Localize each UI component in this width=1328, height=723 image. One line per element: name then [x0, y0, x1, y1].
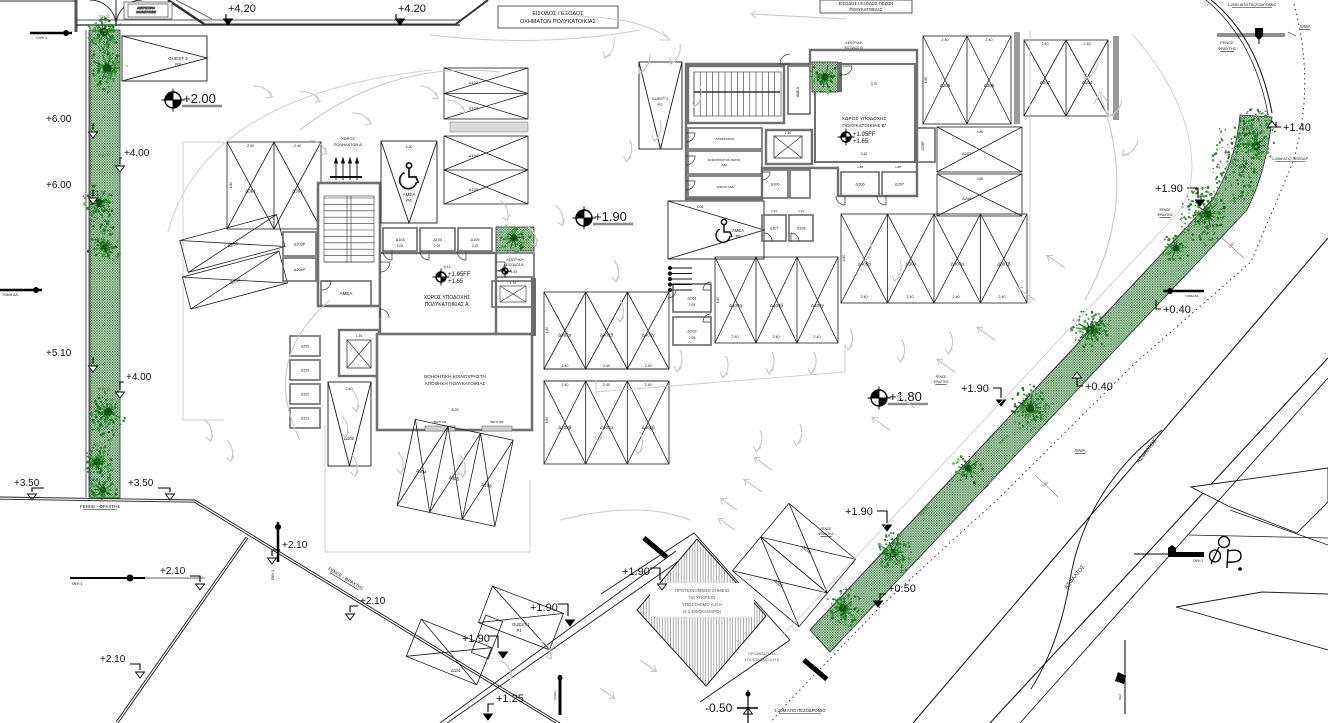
svg-text:3.80: 3.80: [721, 163, 727, 167]
svg-text:ΤΟΙΧΟΣ: ΤΟΙΧΟΣ: [98, 15, 110, 19]
svg-text:+1.65: +1.65: [448, 279, 464, 285]
svg-text:3.30: 3.30: [406, 145, 413, 149]
svg-text:ΚΗΠΟΣ: ΚΗΠΟΣ: [1246, 127, 1258, 131]
svg-text:1.88: 1.88: [857, 165, 863, 169]
svg-text:+1.90: +1.90: [961, 383, 989, 395]
svg-text:ΥΠΟΣΤΑΘΜΟ Α.Η.Κ: ΥΠΟΣΤΑΘΜΟ Α.Η.Κ: [745, 658, 780, 662]
svg-text:Δ105: Δ105: [469, 187, 479, 192]
svg-text:+2.00: +2.00: [183, 91, 216, 106]
svg-text:Δ101: Δ101: [451, 668, 461, 673]
svg-text:Ρ1: Ρ1: [516, 628, 522, 633]
svg-text:Δ206: Δ206: [940, 83, 951, 88]
svg-text:ΧΩΡΟΣ: ΧΩΡΟΣ: [341, 136, 355, 141]
svg-text:ΚΕΝΤΡΙΚΗ: ΚΕΝΤΡΙΚΗ: [846, 41, 864, 45]
svg-text:ΠΡΟΤΕΙΝΟΜΕΝΟ ΣΗΜΕΙΟ: ΠΡΟΤΕΙΝΟΜΕΝΟ ΣΗΜΕΙΟ: [675, 588, 730, 593]
svg-text:ΑΠΟΘΗΚΗ ΠΟΛΥΚΑΤΟΙΚΙΑΣ: ΑΠΟΘΗΚΗ ΠΟΛΥΚΑΤΟΙΚΙΑΣ: [425, 381, 486, 386]
svg-text:FENCE: FENCE: [936, 375, 947, 379]
svg-text:3.45: 3.45: [861, 152, 868, 156]
svg-text:ΤΟΜΗ ΑΑ: ΤΟΜΗ ΑΑ: [1185, 294, 1198, 298]
svg-text:ΑΝΑΨΥΚΤΗΡΙΟ: ΑΝΑΨΥΚΤΗΡΙΟ: [137, 7, 155, 10]
svg-text:+4.00: +4.00: [126, 372, 152, 383]
svg-text:1.34: 1.34: [798, 209, 804, 213]
svg-text:2.40: 2.40: [346, 387, 353, 391]
svg-text:ΦΡΑΧΤΗΣ: ΦΡΑΧΤΗΣ: [934, 380, 949, 384]
svg-text:2.40: 2.40: [603, 383, 610, 387]
svg-text:2.40: 2.40: [561, 364, 568, 368]
svg-text:ΑΜΕΑ: ΑΜΕΑ: [340, 291, 353, 296]
svg-text:2.40: 2.40: [773, 335, 780, 339]
svg-text:+1.93: +1.93: [509, 270, 517, 274]
svg-text:Δ302: Δ302: [292, 188, 303, 193]
svg-text:ΟΨΗ 1: ΟΨΗ 1: [36, 36, 47, 40]
svg-text:ΧΩΡΟΣ ΥΠΟΔΟΧΗΣ: ΧΩΡΟΣ ΥΠΟΔΟΧΗΣ: [842, 116, 887, 122]
svg-text:FENCE - ΦΡΑΧΤΗΣ: FENCE - ΦΡΑΧΤΗΣ: [80, 504, 121, 509]
svg-text:Δ404β: Δ404β: [770, 303, 784, 308]
svg-text:2.40: 2.40: [1084, 42, 1091, 46]
svg-text:Δ206: Δ206: [855, 182, 865, 187]
svg-text:Δ104: Δ104: [469, 153, 479, 158]
svg-text:4.80: 4.80: [977, 177, 984, 181]
svg-text:ΟΧΗΜΑΤΩΝ ΠΟΛΥΚΑΤΟΙΚΙΑΣ: ΟΧΗΜΑΤΩΝ ΠΟΛΥΚΑΤΟΙΚΙΑΣ: [520, 19, 597, 25]
svg-text:ΓΙΑ ΥΠΟΓΕΙΟ: ΓΙΑ ΥΠΟΓΕΙΟ: [689, 595, 717, 600]
svg-text:2.40: 2.40: [294, 144, 301, 148]
svg-text:+1.90: +1.90: [845, 506, 873, 518]
svg-text:Δ106: Δ106: [771, 183, 780, 187]
svg-text:1.20Μ ΑΠΟ ΠΕΖΟΔΡ: 1.20Μ ΑΠΟ ΠΕΖΟΔΡ: [1272, 157, 1309, 161]
svg-text:ΑΜΕΑ: ΑΜΕΑ: [732, 228, 744, 233]
svg-text:ΚΗΠΟΣ: ΚΗΠΟΣ: [98, 387, 111, 391]
svg-text:ΧΩΡΟΣ ΚΔΔ: ΧΩΡΟΣ ΚΔΔ: [716, 185, 733, 189]
svg-text:4.80: 4.80: [229, 182, 233, 189]
svg-text:2.09: 2.09: [434, 244, 440, 248]
svg-text:ΧΩΡΟΣ ΥΠΟΔΟΧΗΣ: ΧΩΡΟΣ ΥΠΟΔΟΧΗΣ: [424, 295, 471, 301]
svg-text:+1.90: +1.90: [622, 566, 650, 578]
svg-text:4.80: 4.80: [977, 130, 984, 134]
svg-text:2.40: 2.40: [814, 335, 821, 339]
svg-text:Δ404γ: Δ404γ: [811, 303, 825, 308]
svg-text:4.80: 4.80: [545, 417, 549, 424]
svg-text:+1.90: +1.90: [530, 602, 558, 614]
svg-text:GUEST 2: GUEST 2: [651, 96, 669, 101]
svg-text:GUEST 1: GUEST 1: [512, 622, 531, 627]
svg-text:ΠΟΔΗΛΑΤΩΝ Α': ΠΟΔΗΛΑΤΩΝ Α': [333, 142, 362, 147]
svg-text:+6.00: +6.00: [46, 114, 72, 125]
svg-text:ΟΨΗ 2: ΟΨΗ 2: [271, 570, 275, 580]
svg-text:ΔΟΞΑΜΑΤΟΣΗΚΗ: ΔΟΞΑΜΑΤΟΣΗΚΗ: [136, 11, 156, 14]
svg-text:ΒΟΗΘΗΤΙΚΗ ΚΟΙΝΟΧΡΗΣΤΗ: ΒΟΗΘΗΤΙΚΗ ΚΟΙΝΟΧΡΗΣΤΗ: [424, 374, 486, 379]
svg-text:Δ107: Δ107: [1040, 80, 1051, 85]
svg-text:Δ405α: Δ405α: [858, 262, 872, 267]
svg-text:Δ205: Δ205: [301, 345, 309, 349]
svg-text:ΦΡΑΧΤΗΣ: ΦΡΑΧΤΗΣ: [819, 532, 834, 536]
svg-text:2.08: 2.08: [689, 303, 695, 307]
svg-text:Δ306: Δ306: [984, 83, 995, 88]
svg-text:Δ404α: Δ404α: [729, 303, 743, 308]
svg-text:+4.00: +4.00: [124, 148, 150, 159]
svg-text:ΠΡΟΣΒΑΣΗ ΓΙΑ: ΠΡΟΣΒΑΣΗ ΓΙΑ: [748, 652, 776, 656]
svg-text:2.40: 2.40: [645, 383, 652, 387]
svg-text:ΚΟΙΝΟΧΡΗΣΤΟΣ ΧΩΡΟΣ: ΚΟΙΝΟΧΡΗΣΤΟΣ ΧΩΡΟΣ: [708, 158, 741, 162]
svg-text:4.80: 4.80: [842, 255, 846, 262]
svg-text:ΕΙΣΟΔΟΣ / ΕΞΟΔΟΣ ΠΕΖΩΝ: ΕΙΣΟΔΟΣ / ΕΞΟΔΟΣ ΠΕΖΩΝ: [839, 1, 894, 6]
svg-text:5.08: 5.08: [697, 205, 704, 209]
svg-text:GUEST 3: GUEST 3: [168, 56, 188, 61]
svg-text:Δ207: Δ207: [895, 182, 905, 187]
svg-text:FENCE: FENCE: [821, 527, 832, 531]
svg-text:2.40: 2.40: [942, 38, 949, 42]
svg-text:ΦΡΑΧΤΗΣ: ΦΡΑΧΤΗΣ: [1158, 213, 1173, 217]
svg-text:Δ202: Δ202: [687, 329, 697, 334]
svg-text:Δ104: Δ104: [433, 238, 442, 242]
svg-text:Δ208: Δ208: [962, 196, 972, 201]
svg-text:1.75: 1.75: [510, 281, 516, 285]
svg-text:Δ307β: Δ307β: [997, 262, 1011, 267]
svg-text:Ρ4: Ρ4: [406, 198, 412, 203]
svg-text:+0.40: +0.40: [1085, 381, 1113, 393]
svg-text:ΟΨΗ 3: ΟΨΗ 3: [72, 582, 82, 586]
svg-text:Δ201: Δ201: [687, 296, 697, 301]
svg-text:ΠΕΖ: ΠΕΖ: [1118, 694, 1122, 700]
svg-text:ΛΙΝΙΑ: ΛΙΝΙΑ: [1300, 24, 1311, 29]
svg-text:2.40: 2.40: [953, 295, 960, 299]
svg-text:ΕΙΣΟΔΟΣ Α': ΕΙΣΟΔΟΣ Α': [506, 263, 525, 267]
svg-text:1.40: 1.40: [785, 131, 791, 135]
svg-text:+4.20: +4.20: [228, 3, 256, 15]
svg-text:2.40: 2.40: [1042, 42, 1049, 46]
svg-text:2.40: 2.40: [907, 295, 914, 299]
svg-text:Δ104: Δ104: [1082, 80, 1093, 85]
svg-text:Δ402γ: Δ402γ: [642, 333, 656, 338]
svg-text:3.70: 3.70: [871, 82, 878, 86]
svg-text:Δ103: Δ103: [301, 369, 309, 373]
svg-text:2.40: 2.40: [861, 295, 868, 299]
svg-text:6.41: 6.41: [444, 265, 451, 269]
svg-text:FENCE: FENCE: [1160, 208, 1171, 212]
svg-text:ΥΠΟΣΤΑΘΜΟ Α.Η.Κ: ΥΠΟΣΤΑΘΜΟ Α.Η.Κ: [682, 602, 722, 607]
svg-text:ΦΕΓΓΙΤΗΣ: ΦΕΓΓΙΤΗΣ: [490, 420, 504, 424]
svg-text:Δ102: Δ102: [301, 393, 309, 397]
svg-text:+2.10: +2.10: [282, 540, 308, 551]
svg-text:2.40: 2.40: [603, 364, 610, 368]
svg-text:ΚΛΙΜ/ΣΤΑΣΙΟ: ΚΛΙΜ/ΣΤΑΣΙΟ: [716, 137, 735, 141]
svg-text:ΕΙΣΟΔΟΣ Β': ΕΙΣΟΔΟΣ Β': [845, 46, 864, 50]
svg-text:4.80: 4.80: [545, 327, 549, 334]
svg-text:ΦΡΑΧΤΗΣ: ΦΡΑΧΤΗΣ: [1218, 46, 1237, 51]
svg-text:+3.50: +3.50: [128, 478, 154, 489]
svg-text:ΠΟΛΥΚΑΤΟΙΚΙΑΣ: ΠΟΛΥΚΑΤΟΙΚΙΑΣ: [849, 7, 882, 12]
svg-text:ΠΟΛΥΚΑΤΟΙΚΙΑΣ Α': ΠΟΛΥΚΑΤΟΙΚΙΑΣ Α': [425, 302, 470, 308]
svg-text:Δ203Ρ: Δ203Ρ: [294, 243, 306, 247]
svg-text:ΛΙΝΙΑ: ΛΙΝΙΑ: [1075, 448, 1086, 453]
svg-text:ΑΜΕΑ: ΑΜΕΑ: [796, 86, 800, 97]
svg-text:Δ103: Δ103: [469, 105, 479, 110]
svg-text:2.40: 2.40: [986, 38, 993, 42]
svg-text:ΠΡΑΣΙΝΟ: ΠΡΑΣΙΝΟ: [1245, 132, 1260, 136]
svg-text:Δ301: Δ301: [245, 188, 256, 193]
svg-text:2.40: 2.40: [561, 383, 568, 387]
svg-text:8.25: 8.25: [452, 408, 459, 412]
svg-text:Ρ2: Ρ2: [658, 102, 664, 107]
svg-text:Δ403β: Δ403β: [558, 425, 572, 430]
svg-text:1.10: 1.10: [356, 334, 362, 338]
svg-text:FENCE: FENCE: [1220, 40, 1234, 45]
svg-text:Η:2.40Μ(ΚΑΘΑΡΟ): Η:2.40Μ(ΚΑΘΑΡΟ): [683, 609, 721, 614]
svg-text:Δ307α: Δ307α: [951, 262, 965, 267]
svg-text:+3.50: +3.50: [14, 478, 40, 489]
svg-text:1.88: 1.88: [895, 165, 901, 169]
svg-text:+4.20: +4.20: [398, 3, 426, 15]
svg-text:Δ309: Δ309: [905, 262, 916, 267]
svg-text:ΠΟΛΥΚΑΤΟΙΚΙΑΣ Β': ΠΟΛΥΚΑΤΟΙΚΙΑΣ Β': [842, 123, 885, 129]
svg-text:ΚΕΝΤΡΙΚΗ: ΚΕΝΤΡΙΚΗ: [507, 258, 525, 262]
svg-text:ΟΨΗ 3: ΟΨΗ 3: [1193, 559, 1203, 563]
svg-text:Δ401β: Δ401β: [642, 425, 656, 430]
svg-text:Δ402α: Δ402α: [558, 333, 572, 338]
svg-text:Ρ5: Ρ5: [735, 234, 741, 239]
svg-text:Δ207: Δ207: [962, 151, 972, 156]
svg-text:2.40: 2.40: [732, 335, 739, 339]
svg-text:Δ105: Δ105: [471, 238, 480, 242]
svg-text:+1.95FF: +1.95FF: [448, 272, 471, 278]
svg-text:+1.90: +1.90: [594, 209, 627, 224]
svg-text:+1.65: +1.65: [853, 139, 869, 145]
svg-text:+1.90: +1.90: [1155, 183, 1183, 195]
svg-text:2.40: 2.40: [247, 144, 254, 148]
svg-text:2.08: 2.08: [689, 336, 695, 340]
svg-text:Δ204Ρ: Δ204Ρ: [294, 268, 306, 272]
svg-text:P3: P3: [175, 62, 181, 67]
svg-text:ΑΜΕΑ: ΑΜΕΑ: [403, 192, 416, 197]
svg-text:ΤΟΜΗ ΑΑ: ΤΟΜΗ ΑΑ: [2, 293, 18, 297]
svg-text:+1.40: +1.40: [1283, 122, 1311, 134]
svg-text:+5.10: +5.10: [46, 348, 72, 359]
svg-text:ΤΟΜΗ: ΤΟΜΗ: [553, 691, 557, 700]
svg-text:+0.40: +0.40: [1163, 304, 1191, 316]
svg-text:+6.00: +6.00: [46, 180, 72, 191]
svg-text:4.80: 4.80: [924, 77, 928, 84]
svg-text:-0.50: -0.50: [705, 701, 733, 715]
svg-text:Δ108: Δ108: [797, 227, 806, 231]
svg-text:4.80: 4.80: [716, 297, 720, 304]
svg-text:ΚΗΠΟΣ: ΚΗΠΟΣ: [98, 153, 111, 157]
svg-text:Δ101: Δ101: [301, 417, 309, 421]
svg-text:+1.25: +1.25: [496, 693, 524, 705]
svg-text:Δ402β: Δ402β: [600, 333, 614, 338]
svg-text:2.40: 2.40: [645, 364, 652, 368]
svg-text:+1.90: +1.90: [462, 633, 490, 645]
svg-text:+2.10: +2.10: [100, 654, 126, 665]
svg-text:Δ102: Δ102: [469, 80, 479, 85]
svg-text:+2.10: +2.10: [360, 596, 386, 607]
svg-text:Δ208Ρ: Δ208Ρ: [921, 141, 925, 151]
svg-text:Δ107: Δ107: [770, 227, 779, 231]
svg-text:+2.10: +2.10: [160, 566, 186, 577]
svg-text:1.34: 1.34: [771, 209, 777, 213]
svg-text:2.05: 2.05: [397, 244, 403, 248]
svg-text:+0.50: +0.50: [888, 583, 916, 595]
svg-text:2.10: 2.10: [472, 244, 478, 248]
svg-text:+1.95FF: +1.95FF: [853, 132, 876, 138]
svg-text:1.20Μ ΑΠΟ ΠΕΖΟΔΡΟΜΙΟ: 1.20Μ ΑΠΟ ΠΕΖΟΔΡΟΜΙΟ: [1228, 2, 1277, 7]
svg-text:Δ103: Δ103: [396, 238, 405, 242]
svg-text:2.40: 2.40: [999, 295, 1006, 299]
